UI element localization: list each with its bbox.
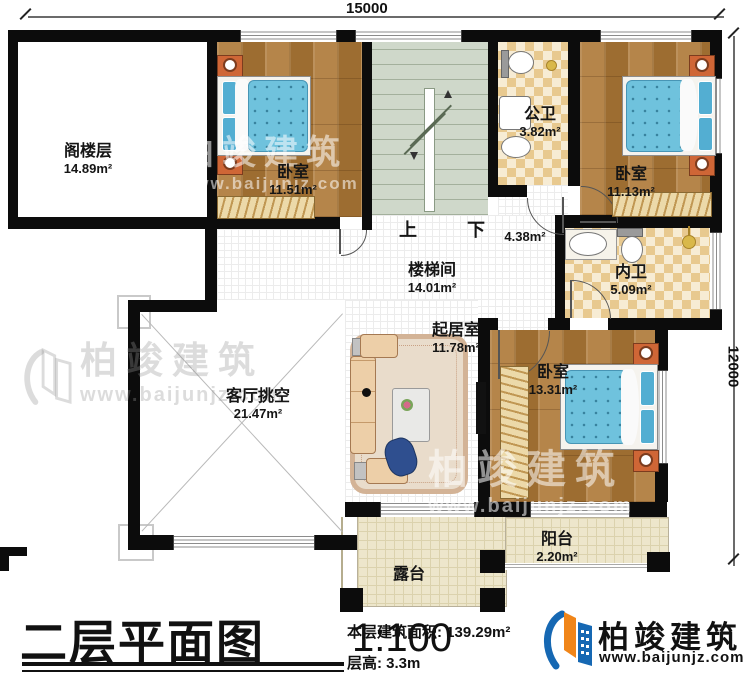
room-area: 11.13m² [607,184,655,199]
dimension-right-label: 12000 [724,346,741,388]
pillar [340,588,363,612]
window [355,30,462,42]
watermark-logo-icon [20,342,72,412]
window [600,30,692,42]
terrace-edge-line [341,517,343,588]
wall [335,30,355,42]
lamp-icon [695,58,709,72]
floor-area-text: 本层建筑面积: 139.29m² [347,621,510,642]
pillow [698,117,713,151]
stairs-up-label: 上 [399,216,417,242]
wall [217,30,240,42]
room-area: 4.38m² [504,229,545,244]
wall [313,535,357,550]
coffee-table [392,388,430,442]
door-leaf [570,280,572,318]
sink-icon [501,136,531,158]
sink-icon [569,232,607,256]
room-name: 公卫 [519,100,560,124]
wall [128,300,140,548]
dimension-tick [19,8,31,20]
wall [8,30,217,42]
floor-drain-icon [546,60,557,71]
bed [622,76,716,156]
room-area: 14.89m² [64,161,112,176]
nightstand [689,55,715,77]
room-label-attic: 阁楼层 14.89m² [64,137,112,176]
room-name: 卧室 [607,160,655,184]
room-label-void: 客厅挑空 21.47m² [226,382,290,421]
room-label-living: 起居室 11.78m² [432,316,480,355]
wall [548,318,570,330]
room-name: 内卫 [610,258,651,282]
bed [217,76,311,156]
tv-icon [476,382,486,434]
room-label-terrace: 露台 [393,560,425,584]
wardrobe [500,366,529,499]
sofa [350,356,376,454]
lamp-icon [639,346,653,360]
pillar [480,550,505,573]
floor-plan-page: 15000 12000 [0,0,750,683]
room-area: 11.78m² [432,340,480,355]
room-area: 14.01m² [408,280,456,295]
room-area: 2.20m² [536,549,577,564]
wall [8,30,18,229]
roof-edge [0,547,9,571]
door-leaf [339,229,341,254]
room-label-stairwell: 楼梯间 14.01m² [408,256,456,295]
room-area: 5.09m² [610,282,651,297]
title-underline [22,670,344,672]
nightstand [633,343,659,365]
nightstand [633,450,659,472]
wardrobe [217,196,315,219]
pillow [640,371,655,406]
window [240,30,337,42]
watermark-logo-icon [128,136,172,194]
floor-height-text: 层高: 3.3m [347,652,420,673]
nightstand [689,154,715,176]
room-area: 13.31m² [529,382,577,397]
room-area: 3.82m² [519,124,560,139]
wall [345,502,380,517]
room-name: 起居室 [432,316,480,340]
stair-arrow-icon [410,152,418,160]
wall [8,217,217,229]
dimension-tick [713,8,725,20]
pillow [698,81,713,115]
room-name: 阳台 [536,525,577,549]
wall [488,30,498,185]
title-underline [22,662,344,666]
room-name: 客厅挑空 [226,382,290,406]
decor-dot [362,388,371,397]
armchair [360,334,398,358]
lamp-icon [695,157,709,171]
room-name: 阁楼层 [64,137,112,161]
brand-url: www.baijunjz.com [599,649,744,666]
pillar [647,552,670,572]
shower-hose [688,226,690,236]
room-name: 卧室 [269,158,317,182]
stairs-down-label: 下 [467,216,485,242]
watermark-brand: 柏竣建筑 [80,342,285,379]
room-label-balcony: 阳台 2.20m² [536,525,577,564]
lamp-icon [223,156,237,170]
wall [488,185,527,197]
pillar [480,588,505,612]
mattress [626,80,686,152]
room-label-bedroom1: 卧室 11.51m² [269,158,317,197]
door-leaf [562,197,564,233]
toilet-icon [508,51,534,74]
room-name: 露台 [393,560,425,584]
wall [628,502,667,517]
stair-arrow-icon [444,90,452,98]
shower-head-icon [682,235,696,249]
room-name: 卧室 [529,358,577,382]
balcony-floor [505,517,669,565]
lamp-icon [223,58,237,72]
window [173,535,315,550]
door-leaf [580,221,616,223]
room-area: 21.47m² [226,406,290,421]
corridor-area-label: 4.38m² [504,229,545,244]
patio-door-window [380,502,475,517]
room-label-bedroom2: 卧室 11.13m² [607,160,655,199]
bed-sheet [680,79,698,151]
room-label-public-bath: 公卫 3.82m² [519,100,560,139]
lamp-icon [639,453,653,467]
window [530,502,630,517]
pillow [640,409,655,444]
wall [473,502,530,517]
wall [362,30,372,230]
table-decor [401,399,413,411]
nightstand [217,55,243,77]
bed-sheet [621,369,639,445]
wall [568,30,580,186]
balcony-edge [505,563,670,570]
mattress [248,80,308,152]
dimension-top-label: 15000 [346,0,388,17]
room-name: 楼梯间 [408,256,456,280]
wall [608,318,722,330]
room-label-ensuite: 内卫 5.09m² [610,258,651,297]
stair-rail [424,88,435,212]
room-area: 11.51m² [269,182,317,197]
window [710,232,722,310]
wall [555,228,565,318]
dimension-line-right [733,36,735,566]
brand-logo-icon [540,608,594,672]
wall [128,300,217,312]
wall [478,318,498,330]
room-label-bedroom3: 卧室 13.31m² [529,358,577,397]
wall [128,535,173,550]
nightstand [217,153,243,175]
wall [207,30,217,229]
